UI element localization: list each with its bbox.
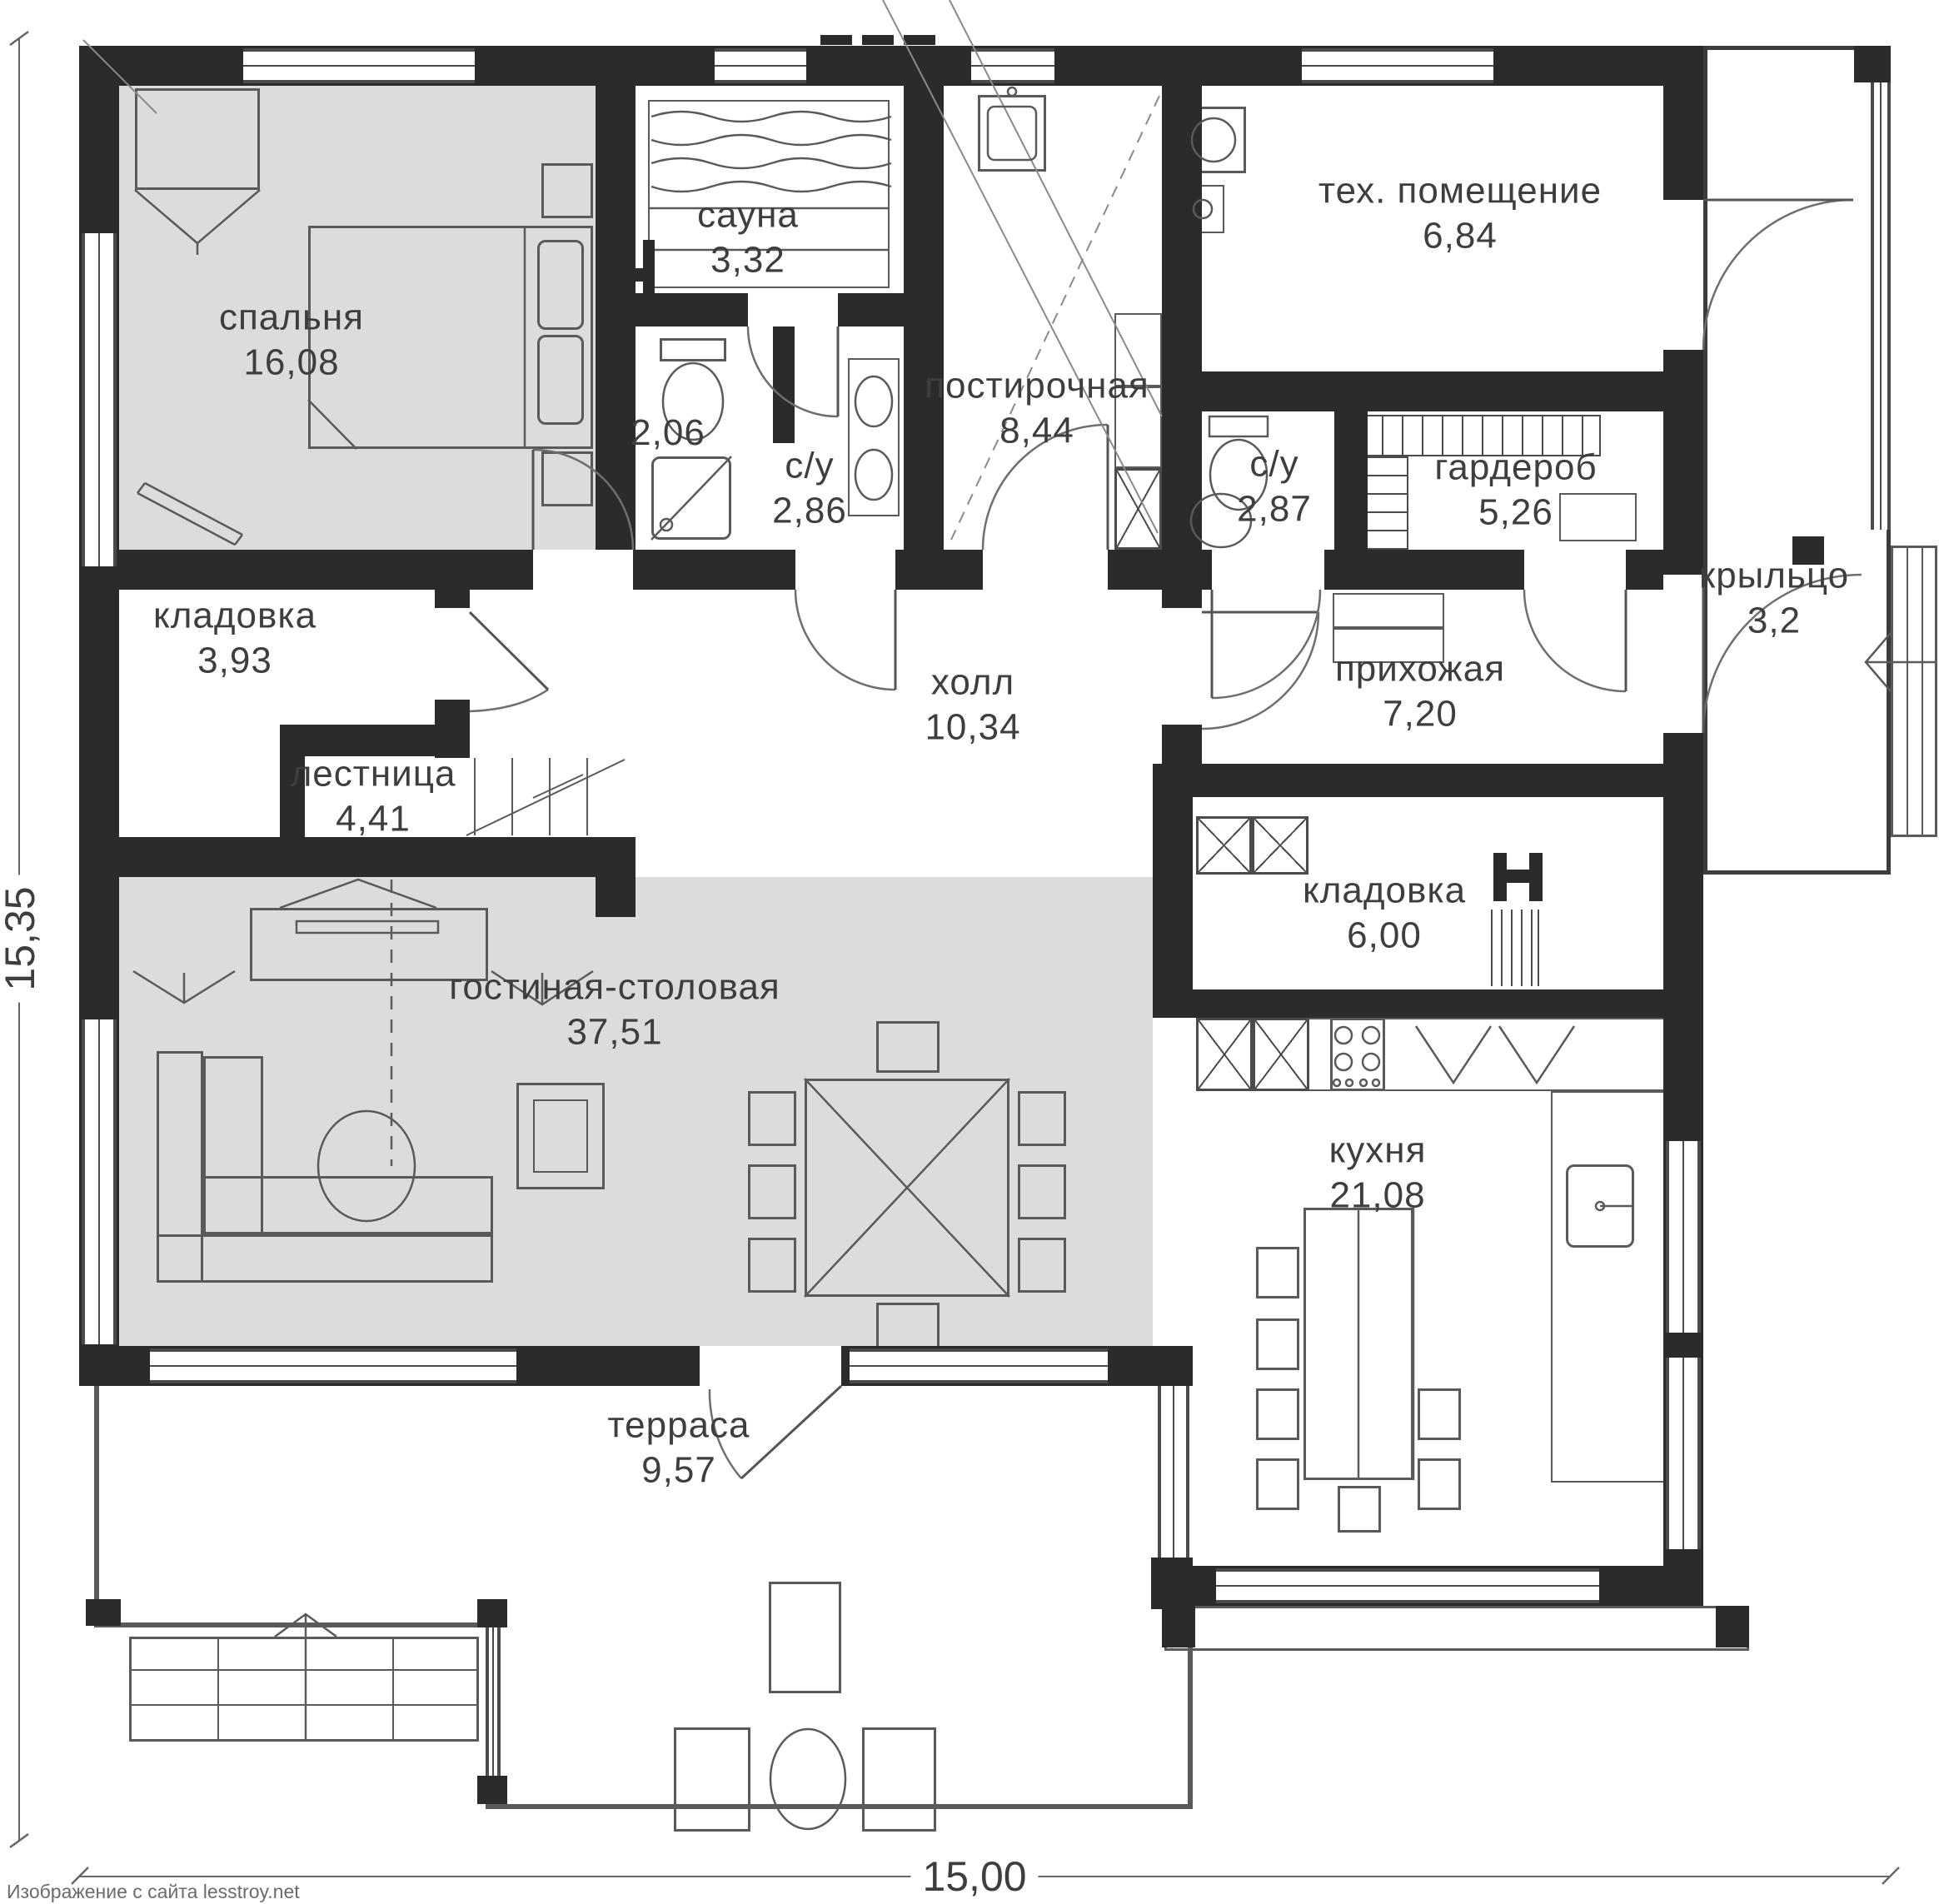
room-area: 37,51: [449, 1009, 780, 1054]
room-area: 16,08: [219, 340, 364, 385]
room-name: гардероб: [1434, 445, 1597, 490]
kitchen-cabinet-x: [1253, 1018, 1309, 1091]
chair: [748, 1164, 796, 1219]
stairs: [466, 758, 625, 835]
room-name: прихожая: [1335, 646, 1505, 691]
room-area: 2,86: [772, 488, 847, 533]
room-area: 8,44: [925, 408, 1149, 453]
vent-dash: [841, 52, 873, 62]
attic-hatch-icon: [1493, 853, 1543, 901]
nightstand: [541, 451, 593, 506]
room-label-porch: крыльцо 3,2: [1699, 553, 1849, 642]
terrace-armchair: [862, 1727, 936, 1832]
kitchen-counter-right: [1551, 1091, 1666, 1483]
laundry-top-window: [971, 48, 1054, 83]
room-label-bedroom: спальня 16,08: [219, 295, 364, 384]
vent-dash: [883, 52, 915, 62]
chair: [748, 1238, 796, 1293]
kitchen-bottom-window: [1216, 1568, 1599, 1603]
pillow: [537, 335, 584, 425]
wall-h2: [119, 837, 636, 877]
vent-dash: [820, 35, 852, 45]
wall-storage2-left: [1153, 764, 1193, 1018]
chair: [1018, 1238, 1066, 1293]
room-area: 3,93: [153, 638, 317, 683]
chair: [1256, 1388, 1299, 1440]
entrance-steps: [1891, 546, 1937, 837]
chair: [1418, 1388, 1461, 1440]
terrace-railing: [486, 1626, 501, 1777]
chair: [1018, 1091, 1066, 1146]
room-area: 10,34: [925, 705, 1020, 750]
room-name: тех. помещение: [1318, 168, 1602, 213]
room-area: 3,32: [697, 237, 799, 282]
shoe-cabinet: [1333, 593, 1444, 628]
room-name: гостиная-столовая: [449, 964, 780, 1009]
chair: [876, 1021, 940, 1073]
room-label-shower: 2,06: [631, 411, 705, 456]
deck-post: [1162, 1606, 1195, 1647]
room-label-storage1: кладовка 3,93: [153, 593, 317, 682]
room-area: 6,00: [1303, 913, 1466, 958]
wall-bedroom-sauna: [596, 86, 636, 550]
porch-window: [1871, 80, 1891, 530]
sauna-top-window: [715, 48, 806, 83]
terrace-post: [477, 1776, 507, 1804]
pillow: [537, 240, 584, 330]
storage2-cabinet-x: [1252, 816, 1308, 875]
room-area: 5,26: [1434, 490, 1597, 535]
chair: [1338, 1486, 1381, 1533]
wall-bath2-wardrobe: [1334, 411, 1368, 550]
chair: [1018, 1164, 1066, 1219]
chair: [1256, 1458, 1299, 1510]
chair: [748, 1091, 796, 1146]
tech-top-window: [1302, 48, 1493, 83]
room-label-wardrobe: гардероб 5,26: [1434, 445, 1597, 534]
laundry-door-opening: [983, 550, 1108, 590]
storage2-cabinet-x: [1196, 816, 1252, 875]
room-name: с/у: [772, 443, 847, 488]
porch-outline: [1703, 46, 1891, 875]
dining-table: [805, 1079, 1009, 1297]
kitchen-right-window-1: [1666, 1141, 1701, 1333]
room-name: холл: [925, 660, 1020, 705]
kitchen-sink: [1566, 1164, 1634, 1248]
vanity: [848, 358, 900, 516]
room-name: сауна: [697, 192, 799, 237]
sauna-door-opening: [748, 293, 838, 326]
room-label-sauna: сауна 3,32: [697, 192, 799, 282]
chair: [1256, 1318, 1299, 1370]
room-area: 21,08: [1329, 1173, 1427, 1218]
dimension-bottom: 15,00: [910, 1852, 1038, 1901]
terrace-armchair: [674, 1727, 750, 1832]
room-label-terrace: терраса 9,57: [607, 1403, 750, 1492]
tech-porch-door-opening: [1663, 200, 1703, 350]
room-label-laundry: постирочная 8,44: [925, 363, 1149, 452]
room-label-tech: тех. помещение 6,84: [1318, 168, 1602, 257]
bath2-door-opening: [1212, 550, 1324, 590]
room-label-kitchen: кухня 21,08: [1329, 1128, 1427, 1217]
terrace-door-opening: [700, 1346, 841, 1386]
sofa-back-bottom: [157, 1234, 493, 1283]
bedroom-closet: [135, 88, 260, 190]
vent-dash: [904, 35, 935, 45]
armchair-inner: [533, 1099, 588, 1173]
nightstand: [541, 163, 593, 218]
chair: [1256, 1247, 1299, 1298]
room-label-stairs: лестница 4,41: [291, 751, 456, 840]
wall-laundry-right: [1162, 86, 1202, 608]
deck-post: [1716, 1606, 1749, 1647]
living-left-window: [82, 1019, 117, 1344]
kitchen-deck: [1164, 1606, 1749, 1651]
storage1-door-opening: [435, 608, 470, 700]
room-label-storage2: кладовка 6,00: [1303, 868, 1466, 957]
terrace-garden-steps: [129, 1637, 479, 1742]
room-label-entry: прихожая 7,20: [1335, 646, 1505, 735]
wardrobe-door-opening: [1524, 550, 1626, 590]
floor-plan: спальня 16,08 сауна 3,32 2,06 с/у 2,86 п…: [0, 0, 1939, 1904]
wall-entry-storage2: [1153, 764, 1663, 797]
terrace-post: [477, 1599, 507, 1627]
kitchen-terrace-glazing: [1158, 1386, 1189, 1558]
room-area: 2,87: [1237, 486, 1312, 531]
kitchen-island: [1303, 1208, 1413, 1480]
porch-post: [1854, 46, 1891, 82]
laundry-sink: [978, 95, 1046, 172]
bath-door-opening: [795, 550, 895, 590]
terrace-left-edge: [94, 1386, 99, 1611]
living-terrace-window-1: [150, 1348, 516, 1383]
terrace-right-edge: [1188, 1622, 1193, 1807]
room-label-living: гостиная-столовая 37,51: [449, 964, 780, 1054]
room-name: спальня: [219, 295, 364, 340]
terrace-bottom-left-edge: [94, 1622, 486, 1627]
entrance-door-opening: [1663, 575, 1703, 733]
room-name: постирочная: [925, 363, 1149, 408]
room-name: кладовка: [1303, 868, 1466, 913]
stove: [1330, 1018, 1385, 1091]
room-name: кухня: [1329, 1128, 1427, 1173]
bedroom-door-opening: [533, 550, 633, 590]
wall-h2-stub: [596, 877, 636, 917]
wall-tech-bottom: [1202, 371, 1663, 411]
laundry-cabinet-x: [1114, 468, 1162, 550]
room-name: с/у: [1237, 441, 1312, 486]
toilet-tank: [660, 338, 726, 361]
room-label-bath2: с/у 2,87: [1237, 441, 1312, 531]
sofa-seats-bottom: [203, 1176, 493, 1234]
watermark: Изображение с сайта lesstroy.net: [7, 1881, 300, 1903]
living-terrace-window-2: [850, 1348, 1108, 1383]
room-area: 2,06: [631, 411, 705, 456]
kitchen-right-window-2: [1666, 1358, 1701, 1549]
wall-storage2-kitchen: [1153, 989, 1703, 1018]
room-area: 4,41: [291, 796, 456, 841]
room-name: терраса: [607, 1403, 750, 1448]
room-name: кладовка: [153, 593, 317, 638]
room-name: лестница: [291, 751, 456, 796]
wall-shower-divider: [773, 326, 795, 443]
attic-ladder: [1491, 910, 1539, 986]
terrace-armchair: [769, 1582, 841, 1693]
glazing-post: [1151, 1558, 1193, 1609]
terrace-post: [86, 1599, 121, 1626]
wall-bath-laundry: [904, 86, 944, 550]
room-label-hall: холл 10,34: [925, 660, 1020, 749]
room-name: крыльцо: [1699, 553, 1849, 598]
room-label-bath1: с/у 2,86: [772, 443, 847, 532]
room-area: 7,20: [1335, 691, 1505, 736]
room-area: 6,84: [1318, 213, 1602, 258]
kitchen-cabinet-x: [1196, 1018, 1253, 1091]
bedroom-top-window: [243, 48, 475, 83]
dimension-left: 15,35: [0, 875, 44, 1002]
room-area: 3,2: [1699, 598, 1849, 643]
bedroom-left-window: [82, 233, 117, 566]
terrace-bottom-edge: [486, 1804, 1193, 1809]
chair: [1418, 1458, 1461, 1510]
wall-laundry-right2: [1162, 725, 1202, 764]
room-area: 9,57: [607, 1448, 750, 1493]
wall-storage1-right-a: [435, 590, 470, 608]
vent-dash: [862, 35, 894, 45]
shower-tray: [651, 456, 731, 540]
entry-door-opening: [1162, 608, 1202, 725]
